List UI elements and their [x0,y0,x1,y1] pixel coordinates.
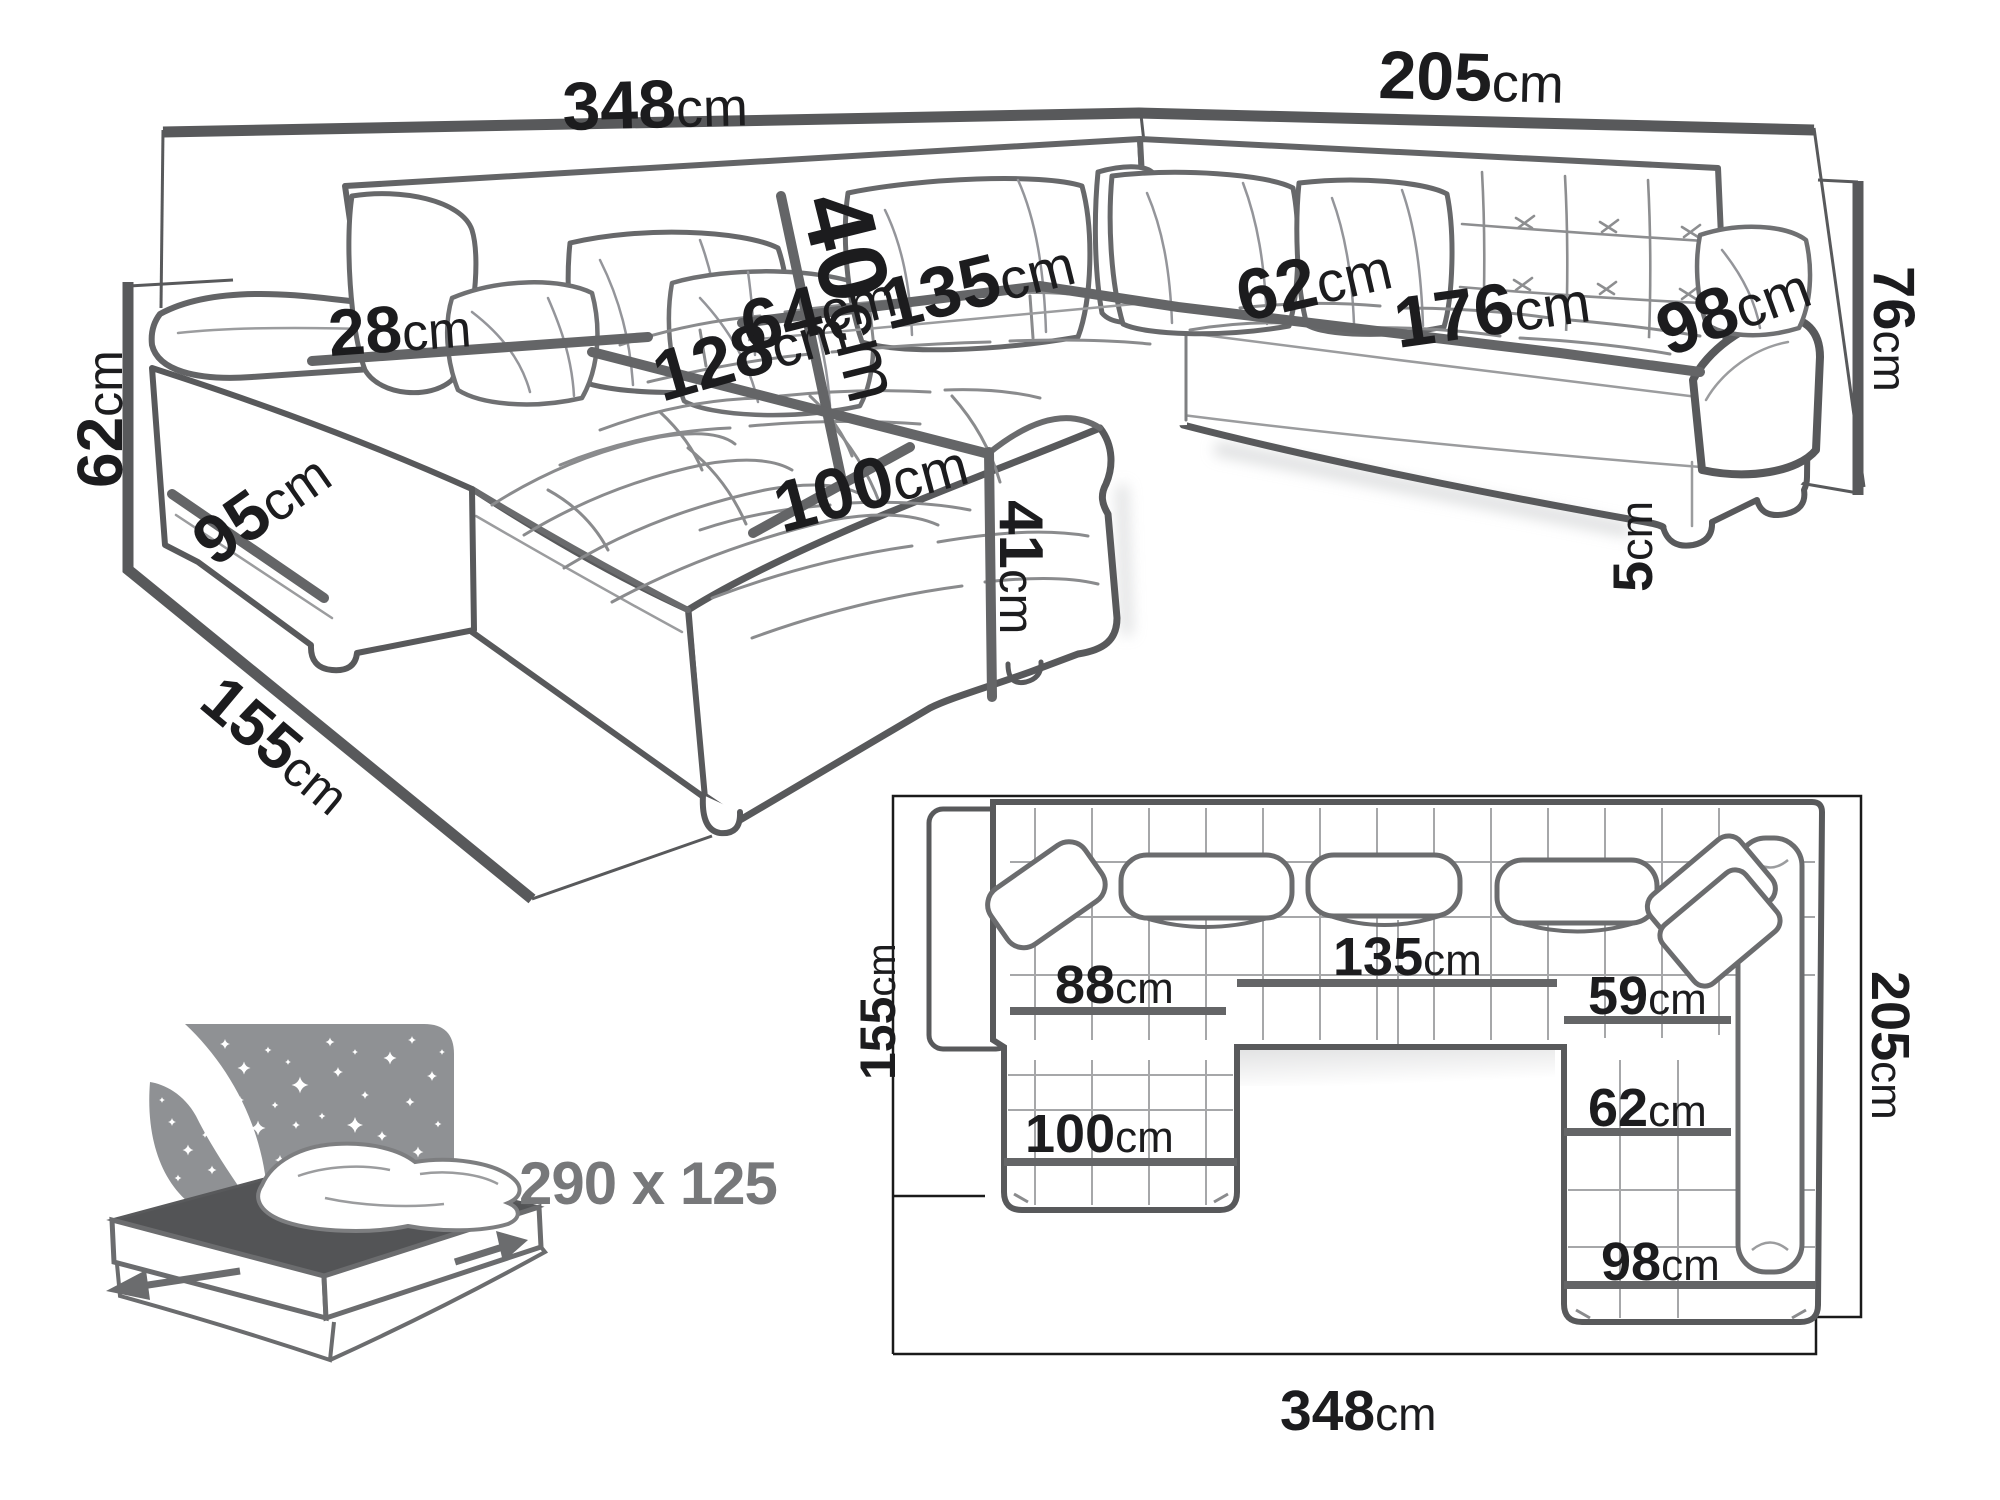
svg-text:290 x 125: 290 x 125 [519,1150,777,1217]
svg-text:5cm: 5cm [1601,501,1664,592]
svg-text:135cm: 135cm [1333,927,1482,987]
svg-text:100cm: 100cm [1025,1104,1174,1164]
svg-text:59cm: 59cm [1588,966,1707,1026]
svg-text:76cm: 76cm [1861,266,1926,392]
svg-text:88cm: 88cm [1055,955,1174,1015]
svg-text:62cm: 62cm [1588,1078,1707,1138]
svg-text:98cm: 98cm [1601,1232,1720,1292]
svg-text:205cm: 205cm [1860,971,1920,1120]
svg-text:348cm: 348cm [1280,1379,1436,1443]
